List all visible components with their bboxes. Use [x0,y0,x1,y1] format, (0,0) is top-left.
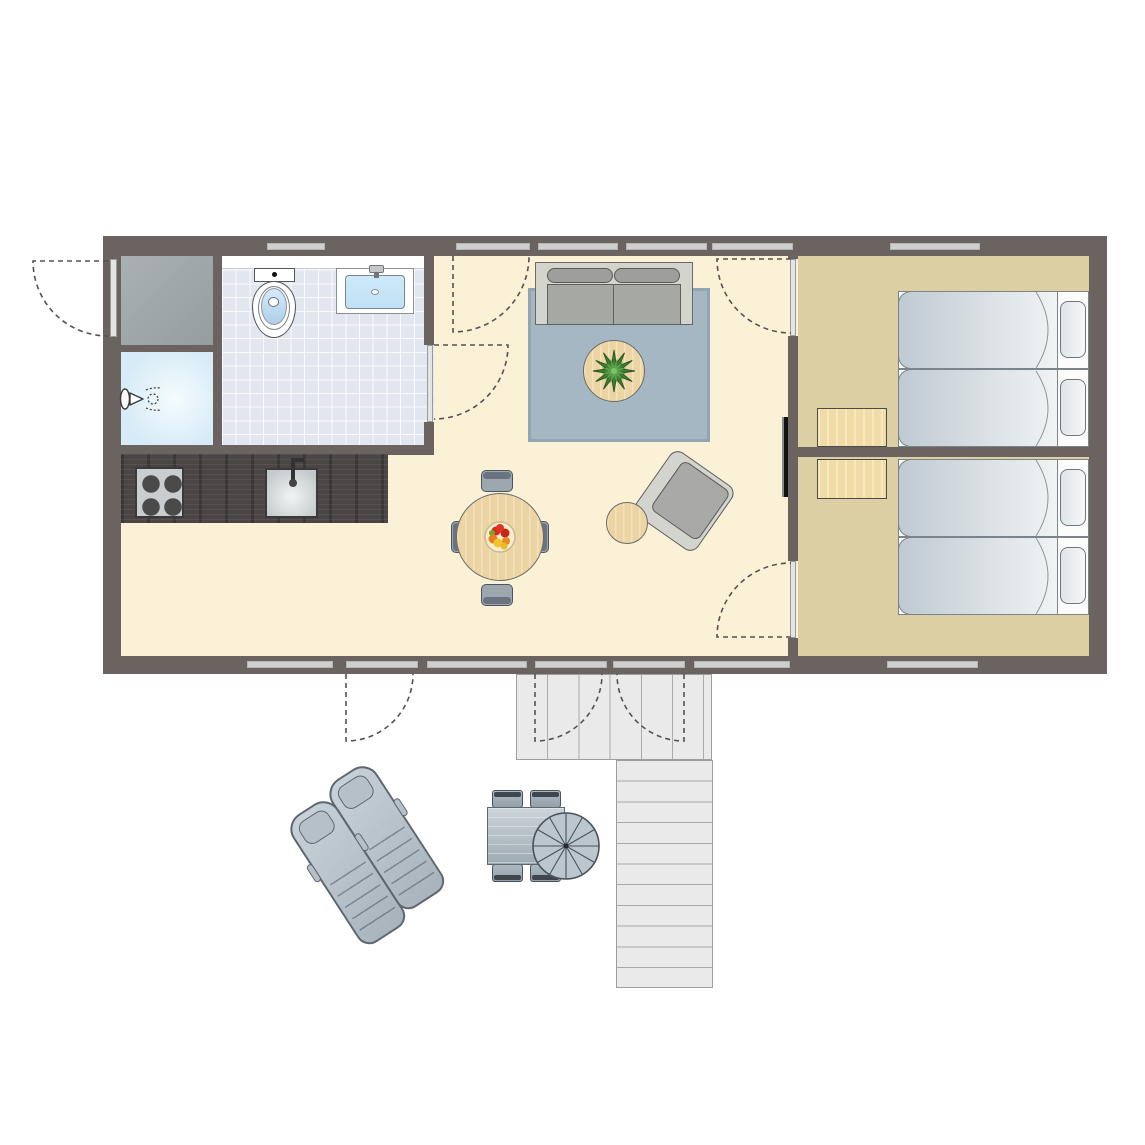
bedrooms-divider-wall [798,447,1089,457]
door-glass-top [456,243,530,250]
outdoor-chair-3 [492,864,523,882]
lounger-armrest [392,797,409,818]
kitchen-faucet-joint [289,479,297,487]
bed-4-duvet [898,537,1058,615]
lounger-head-pillow [334,772,377,812]
lounger-armrest [305,863,322,884]
door-swing-entry [33,261,108,336]
outdoor-chair-back [494,792,521,797]
toilet-button [272,272,277,277]
stove-4-burner [135,467,184,518]
deck [516,674,712,760]
nightstand-bedroom-2 [817,459,887,499]
stairs [616,760,713,988]
window-bottom-1 [247,661,333,668]
outdoor-chair-back [532,792,559,797]
bathroom-east-wall-upper [424,256,434,345]
window-top-5 [890,243,980,250]
entry-door-leaf [110,259,117,337]
bed-1-pillow [1060,301,1086,358]
exterior-wall-right [1089,236,1107,674]
dining-chair-back [483,597,511,604]
window-top-4 [712,243,793,250]
bed-4-pillow [1060,547,1086,604]
washbasin-drain [371,289,379,295]
outdoor-chair-back [494,875,521,880]
door-swing-back-door [346,674,413,741]
back-door-glass [346,661,418,668]
outdoor-chair-4 [530,864,561,882]
outdoor-table [487,807,565,865]
window-bottom-4 [887,661,978,668]
outdoor-chair-1 [492,790,523,808]
bedroom-2-door-leaf [790,561,796,638]
window-bottom-3 [694,661,790,668]
sofa-back-cushion-right [614,268,680,283]
coffee-table [583,340,645,402]
shower [121,352,218,446]
window-top-1 [267,243,325,250]
bedroom-1-door-leaf [790,259,796,336]
washbasin-faucet-icon [369,265,384,273]
outdoor-chair-2 [530,790,561,808]
window-top-2 [538,243,618,250]
dining-chair-south [481,584,513,606]
sofa-seat [547,284,681,325]
outdoor-chair-back [532,875,559,880]
bathroom-wall-stub-vertical [213,256,222,446]
toilet-flush-hole [268,297,279,307]
dining-chair-north [481,470,513,492]
sofa-seat-divider [613,284,614,325]
sofa-back-cushion-left [547,268,613,283]
side-table [606,502,648,544]
bedroom-partition-wall-middle [788,336,798,561]
bedroom-partition-wall-bottom [788,638,798,656]
dining-chair-back [483,472,511,479]
lounger-head-pillow [295,807,338,847]
french-door-right-glass [613,661,685,668]
window-bottom-2 [427,661,527,668]
nightstand-bedroom-1 [817,408,887,447]
washbasin-faucet-spout [374,273,379,278]
bed-2-duvet [898,369,1058,447]
storage-closet [121,256,213,345]
bed-3-pillow [1060,469,1086,526]
dining-table [456,493,544,581]
kitchen-faucet-spout [291,458,304,462]
bed-2-pillow [1060,379,1086,436]
bed-1-duvet [898,291,1058,369]
bed-3-duvet [898,459,1058,537]
french-door-left-glass [535,661,607,668]
bathroom-wall-stub-horizontal [121,345,213,352]
bathroom-door-leaf [427,345,433,422]
floor-plan-canvas [0,0,1145,1145]
window-top-3 [626,243,707,250]
